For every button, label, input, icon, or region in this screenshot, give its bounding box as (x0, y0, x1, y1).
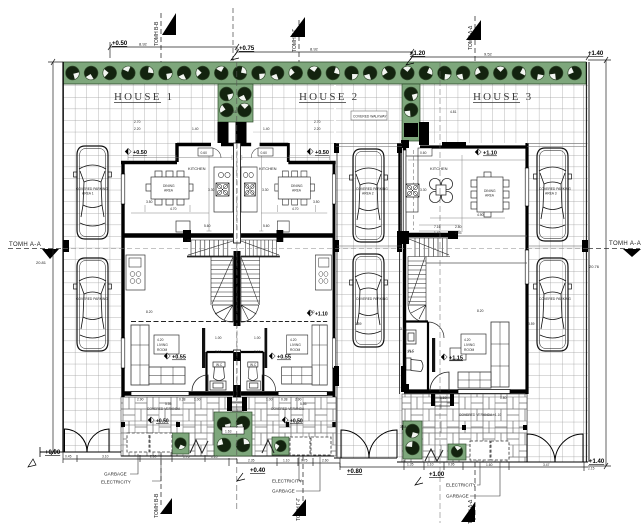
svg-text:2.70: 2.70 (314, 120, 321, 124)
svg-text:3.47: 3.47 (543, 463, 550, 467)
svg-text:AREA: AREA (164, 189, 174, 193)
svg-text:+0.50: +0.50 (315, 150, 329, 156)
svg-text:AREA: AREA (485, 194, 495, 198)
svg-text:+0.50: +0.50 (290, 419, 303, 425)
svg-text:0.75: 0.75 (301, 459, 308, 463)
svg-text:+1.40: +1.40 (588, 51, 604, 57)
svg-text:W.C: W.C (250, 363, 257, 367)
svg-text:4.90: 4.90 (477, 213, 484, 217)
svg-text:COVERED PARKING: COVERED PARKING (539, 187, 571, 191)
svg-text:ROOM: ROOM (290, 348, 301, 352)
svg-text:4.20: 4.20 (464, 338, 471, 342)
svg-text:AREA 3: AREA 3 (545, 192, 557, 196)
svg-text:COVERED PARKING: COVERED PARKING (76, 297, 108, 301)
svg-text:9.52: 9.52 (484, 52, 493, 57)
svg-text:0.95: 0.95 (448, 463, 455, 467)
svg-text:3.10: 3.10 (407, 350, 414, 354)
svg-text:TOMH B-B: TOMH B-B (154, 21, 160, 46)
svg-text:LIVING: LIVING (464, 343, 475, 347)
svg-text:+1.15: +1.15 (449, 356, 463, 362)
svg-text:+0.55: +0.55 (277, 355, 291, 361)
svg-text:COVERED PARKING: COVERED PARKING (539, 297, 571, 301)
svg-text:3.59: 3.59 (355, 322, 362, 326)
svg-text:+0.75: +0.75 (239, 46, 255, 52)
svg-text:+1.10: +1.10 (483, 151, 497, 157)
svg-text:0.45: 0.45 (65, 455, 72, 459)
svg-text:4.70: 4.70 (170, 207, 177, 211)
svg-text:3.30: 3.30 (262, 188, 269, 192)
svg-text:0.80: 0.80 (500, 396, 507, 400)
svg-text:DINING: DINING (291, 184, 303, 188)
svg-text:COVERED WALKWAY: COVERED WALKWAY (353, 115, 387, 119)
svg-text:1.43: 1.43 (434, 231, 441, 235)
svg-text:3.10: 3.10 (102, 455, 109, 459)
svg-text:DINING: DINING (484, 189, 496, 193)
svg-text:8.20: 8.20 (477, 309, 484, 313)
svg-text:+1.20: +1.20 (410, 51, 426, 57)
svg-text:+0.50: +0.50 (112, 41, 128, 47)
svg-text:3.10: 3.10 (215, 350, 222, 354)
svg-text:1.10: 1.10 (211, 455, 218, 459)
svg-text:DINING: DINING (163, 184, 175, 188)
svg-text:0.38: 0.38 (179, 398, 186, 402)
svg-text:4.20: 4.20 (290, 338, 297, 342)
svg-text:1.00: 1.00 (254, 336, 261, 340)
svg-text:TOMH A-A: TOMH A-A (9, 242, 41, 248)
svg-text:1.00: 1.00 (266, 398, 273, 402)
svg-text:4.70: 4.70 (292, 207, 299, 211)
svg-text:ELECTRICITY: ELECTRICITY (272, 479, 302, 484)
svg-text:1.10: 1.10 (283, 459, 290, 463)
svg-text:5.55: 5.55 (300, 402, 307, 406)
svg-text:3.30: 3.30 (208, 188, 215, 192)
svg-text:2.20: 2.20 (314, 127, 321, 131)
svg-text:GARBAGE: GARBAGE (104, 472, 127, 477)
svg-text:5.60: 5.60 (263, 224, 270, 228)
svg-text:ELECTRICITY: ELECTRICITY (446, 483, 476, 488)
svg-text:8.92: 8.92 (310, 47, 319, 52)
svg-text:1.10: 1.10 (427, 463, 434, 467)
svg-text:1.76: 1.76 (183, 455, 190, 459)
svg-text:20.81: 20.81 (36, 260, 47, 265)
svg-text:KITCHEN: KITCHEN (259, 166, 277, 171)
svg-text:TOMH A-A: TOMH A-A (609, 241, 641, 247)
svg-text:ROOM: ROOM (157, 348, 168, 352)
svg-text:1.35: 1.35 (407, 463, 414, 467)
svg-text:2.80: 2.80 (455, 225, 462, 229)
svg-text:2.93: 2.93 (455, 231, 462, 235)
svg-text:HOUSE 1: HOUSE 1 (114, 91, 174, 103)
svg-text:ELECTRICITY: ELECTRICITY (101, 480, 131, 485)
svg-text:8.20: 8.20 (308, 310, 315, 314)
svg-text:1.10: 1.10 (440, 396, 447, 400)
svg-text:3.10: 3.10 (254, 350, 261, 354)
svg-text:3.50: 3.50 (146, 200, 153, 204)
svg-text:TOMH B-B: TOMH B-B (154, 493, 160, 518)
svg-text:2.15: 2.15 (588, 467, 595, 471)
svg-text:1.40: 1.40 (263, 127, 270, 131)
svg-text:1.63: 1.63 (225, 430, 232, 434)
svg-text:1.00: 1.00 (194, 398, 201, 402)
svg-text:W.C: W.C (216, 363, 223, 367)
svg-text:3.44: 3.44 (400, 327, 407, 331)
svg-text:2.70: 2.70 (134, 120, 141, 124)
svg-text:KITCHEN: KITCHEN (188, 166, 206, 171)
svg-text:2.60: 2.60 (322, 459, 329, 463)
svg-text:COVERED PARKING: COVERED PARKING (76, 187, 108, 191)
svg-text:+0.00: +0.00 (45, 450, 61, 456)
svg-text:COVERED PARKING: COVERED PARKING (356, 297, 388, 301)
svg-text:0.60: 0.60 (201, 151, 208, 155)
svg-text:0.60: 0.60 (420, 151, 427, 155)
svg-text:COVERED VERANDA +1.10: COVERED VERANDA +1.10 (459, 413, 501, 417)
svg-text:KITCHEN: KITCHEN (430, 166, 448, 171)
svg-text:2.60: 2.60 (150, 455, 157, 459)
svg-text:1.40: 1.40 (192, 127, 199, 131)
svg-text:+0.80: +0.80 (347, 469, 363, 475)
svg-text:LIVING: LIVING (157, 343, 168, 347)
svg-text:AREA 1: AREA 1 (82, 192, 94, 196)
svg-text:2.90: 2.90 (295, 398, 302, 402)
svg-text:LIVING: LIVING (290, 343, 301, 347)
svg-text:2.90: 2.90 (137, 398, 144, 402)
svg-text:3.59: 3.59 (528, 322, 535, 326)
svg-text:0.60: 0.60 (261, 151, 268, 155)
svg-text:5.60: 5.60 (204, 224, 211, 228)
svg-text:COVERED VERANDA: COVERED VERANDA (271, 407, 305, 411)
svg-text:7.16: 7.16 (434, 225, 441, 229)
svg-text:3.50: 3.50 (313, 200, 320, 204)
svg-text:COVERED PARKING: COVERED PARKING (356, 187, 388, 191)
svg-text:+0.40: +0.40 (250, 468, 266, 474)
svg-text:0.38: 0.38 (281, 398, 288, 402)
svg-text:+0.50: +0.50 (156, 419, 169, 425)
svg-text:8.20: 8.20 (146, 310, 153, 314)
svg-text:2.20: 2.20 (134, 127, 141, 131)
svg-text:5.55: 5.55 (165, 402, 172, 406)
svg-text:+0.55: +0.55 (172, 355, 186, 361)
svg-text:HOUSE 3: HOUSE 3 (473, 91, 533, 103)
svg-text:3.44: 3.44 (400, 425, 407, 429)
svg-text:GARBAGE: GARBAGE (446, 494, 469, 499)
svg-text:+1.00: +1.00 (429, 472, 445, 478)
svg-text:+1.40: +1.40 (589, 459, 605, 465)
svg-text:4.61: 4.61 (230, 110, 237, 114)
svg-text:8.92: 8.92 (139, 42, 148, 47)
svg-text:1.60: 1.60 (486, 463, 493, 467)
svg-text:4.81: 4.81 (450, 110, 457, 114)
svg-text:2.35: 2.35 (248, 459, 255, 463)
svg-text:ROOM: ROOM (464, 348, 475, 352)
svg-text:AREA: AREA (292, 189, 302, 193)
svg-text:HOUSE 2: HOUSE 2 (299, 91, 359, 103)
svg-text:4.20: 4.20 (157, 338, 164, 342)
svg-text:+0.50: +0.50 (133, 150, 147, 156)
svg-text:3.30: 3.30 (420, 188, 427, 192)
svg-text:AREA 2: AREA 2 (362, 192, 374, 196)
svg-text:1.00: 1.00 (215, 336, 222, 340)
svg-text:20.76: 20.76 (589, 264, 600, 269)
svg-text:COVERED VERANDA: COVERED VERANDA (147, 407, 181, 411)
svg-text:GARBAGE: GARBAGE (272, 489, 295, 494)
svg-text:+1.10: +1.10 (315, 312, 328, 318)
